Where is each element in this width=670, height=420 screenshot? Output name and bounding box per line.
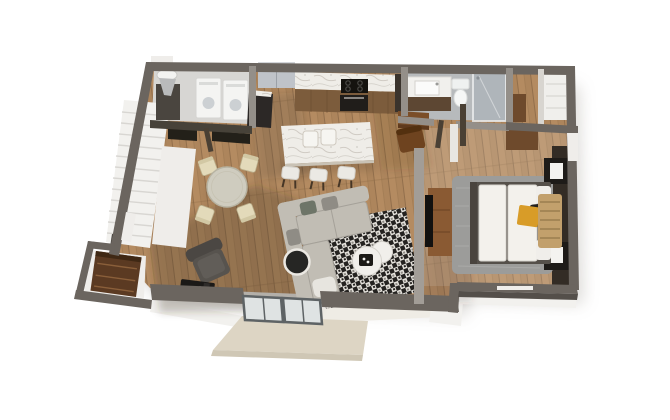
vanity-base bbox=[406, 97, 451, 111]
round-dining-table bbox=[207, 167, 247, 207]
black-tray bbox=[359, 254, 373, 266]
bed bbox=[470, 182, 562, 264]
wall-jog bbox=[448, 283, 460, 313]
washer bbox=[196, 78, 221, 118]
vanity-sink bbox=[415, 81, 439, 95]
round-side-table bbox=[285, 250, 310, 275]
wall-laundry-kitchen bbox=[249, 66, 256, 128]
wall-closet-divider bbox=[538, 69, 544, 126]
entry-closet bbox=[90, 251, 141, 297]
sliding-glass-door bbox=[243, 296, 322, 324]
window-right bbox=[567, 133, 578, 161]
faucet bbox=[436, 83, 439, 86]
wall-bath-closet bbox=[506, 68, 513, 126]
gold-pillow bbox=[517, 205, 541, 228]
throw-blanket bbox=[538, 194, 562, 248]
wall-frame bbox=[549, 162, 564, 180]
wall-bedroom-bottom bbox=[457, 282, 578, 300]
wall-hall-stub bbox=[450, 124, 458, 162]
dryer bbox=[223, 80, 248, 120]
wall-frame bbox=[549, 246, 564, 264]
bedroom-door bbox=[460, 104, 466, 146]
tv-dresser bbox=[425, 188, 452, 256]
island-basin bbox=[321, 129, 336, 145]
cooktop bbox=[341, 79, 368, 93]
wall-kitchen-bath bbox=[401, 67, 408, 116]
wall-partition-bedroom bbox=[414, 148, 424, 304]
tv bbox=[425, 195, 433, 247]
duvet-panel bbox=[479, 185, 506, 261]
window-sill bbox=[497, 286, 533, 290]
island-basin bbox=[303, 131, 318, 147]
glass-shower bbox=[473, 73, 506, 121]
floor-plan-render bbox=[0, 0, 670, 420]
floor-plan-svg bbox=[0, 0, 670, 420]
